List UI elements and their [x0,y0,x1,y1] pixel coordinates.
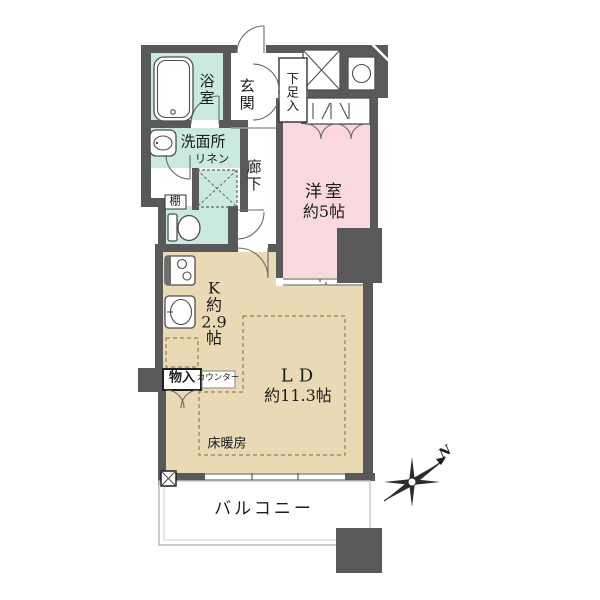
wall-storage-stub [138,368,165,392]
wall-lobby-linen [192,168,199,210]
pillar [337,228,382,283]
floor-plan: 浴室 玄関 下足入 洗面所 リネン 廊下 洋室 約5帖 K 約 2.9 帖 LD… [0,0,600,600]
label-washroom: 洗面所 [180,133,225,150]
label-kitchen: K 約 2.9 帖 [201,280,226,347]
wall-hall-bottom-a [228,244,238,252]
label-bedroom: 洋室 [305,183,345,203]
label-counter: カウンター [197,374,240,384]
wall-bath-bottom-b [219,120,248,128]
label-linen: リネン [195,152,230,165]
label-bedroom-size: 約5帖 [303,203,345,221]
label-ld-size: 約11.3帖 [264,387,332,405]
washbasin-icon [150,130,176,156]
wall-left-kitchen [155,250,163,372]
toilet-icon [168,214,200,241]
wall-bath-entrance [223,53,231,128]
label-bath: 浴室 [197,73,214,107]
drain-box-icon [161,471,176,486]
wall-hall-bottom-b [268,244,276,252]
meter-box-icon [303,50,340,90]
lower-pillar-block [336,528,382,573]
label-shelf: 棚 [170,196,181,209]
label-ld: LD [281,367,319,388]
label-balcony: バルコニー [214,500,314,520]
wall-left-top [141,45,151,207]
wall-top-left [141,45,237,53]
kitchen-sink-icon [165,296,195,328]
label-entrance: 玄関 [237,78,254,112]
compass-icon [384,457,446,507]
wall-right-lower [363,283,373,480]
entrance-door-arc [237,26,264,53]
label-floor-heating: 床暖房 [207,438,246,453]
label-hallway: 廊下 [244,159,261,193]
pipe-space-icon [348,57,375,90]
wall-right-upper [370,98,378,234]
label-storage: 物入 [169,372,195,387]
ld-window [205,473,345,481]
shoe-box [253,58,307,122]
wall-toilet-bottom [155,244,238,252]
stove-icon [165,256,195,285]
label-kitchen-line4: 帖 [206,331,222,348]
lobby-door-arc [237,212,264,239]
bathtub-icon [154,57,193,121]
wall-bedroom-west [276,98,283,278]
label-shoe-box: 下足入 [284,72,298,113]
